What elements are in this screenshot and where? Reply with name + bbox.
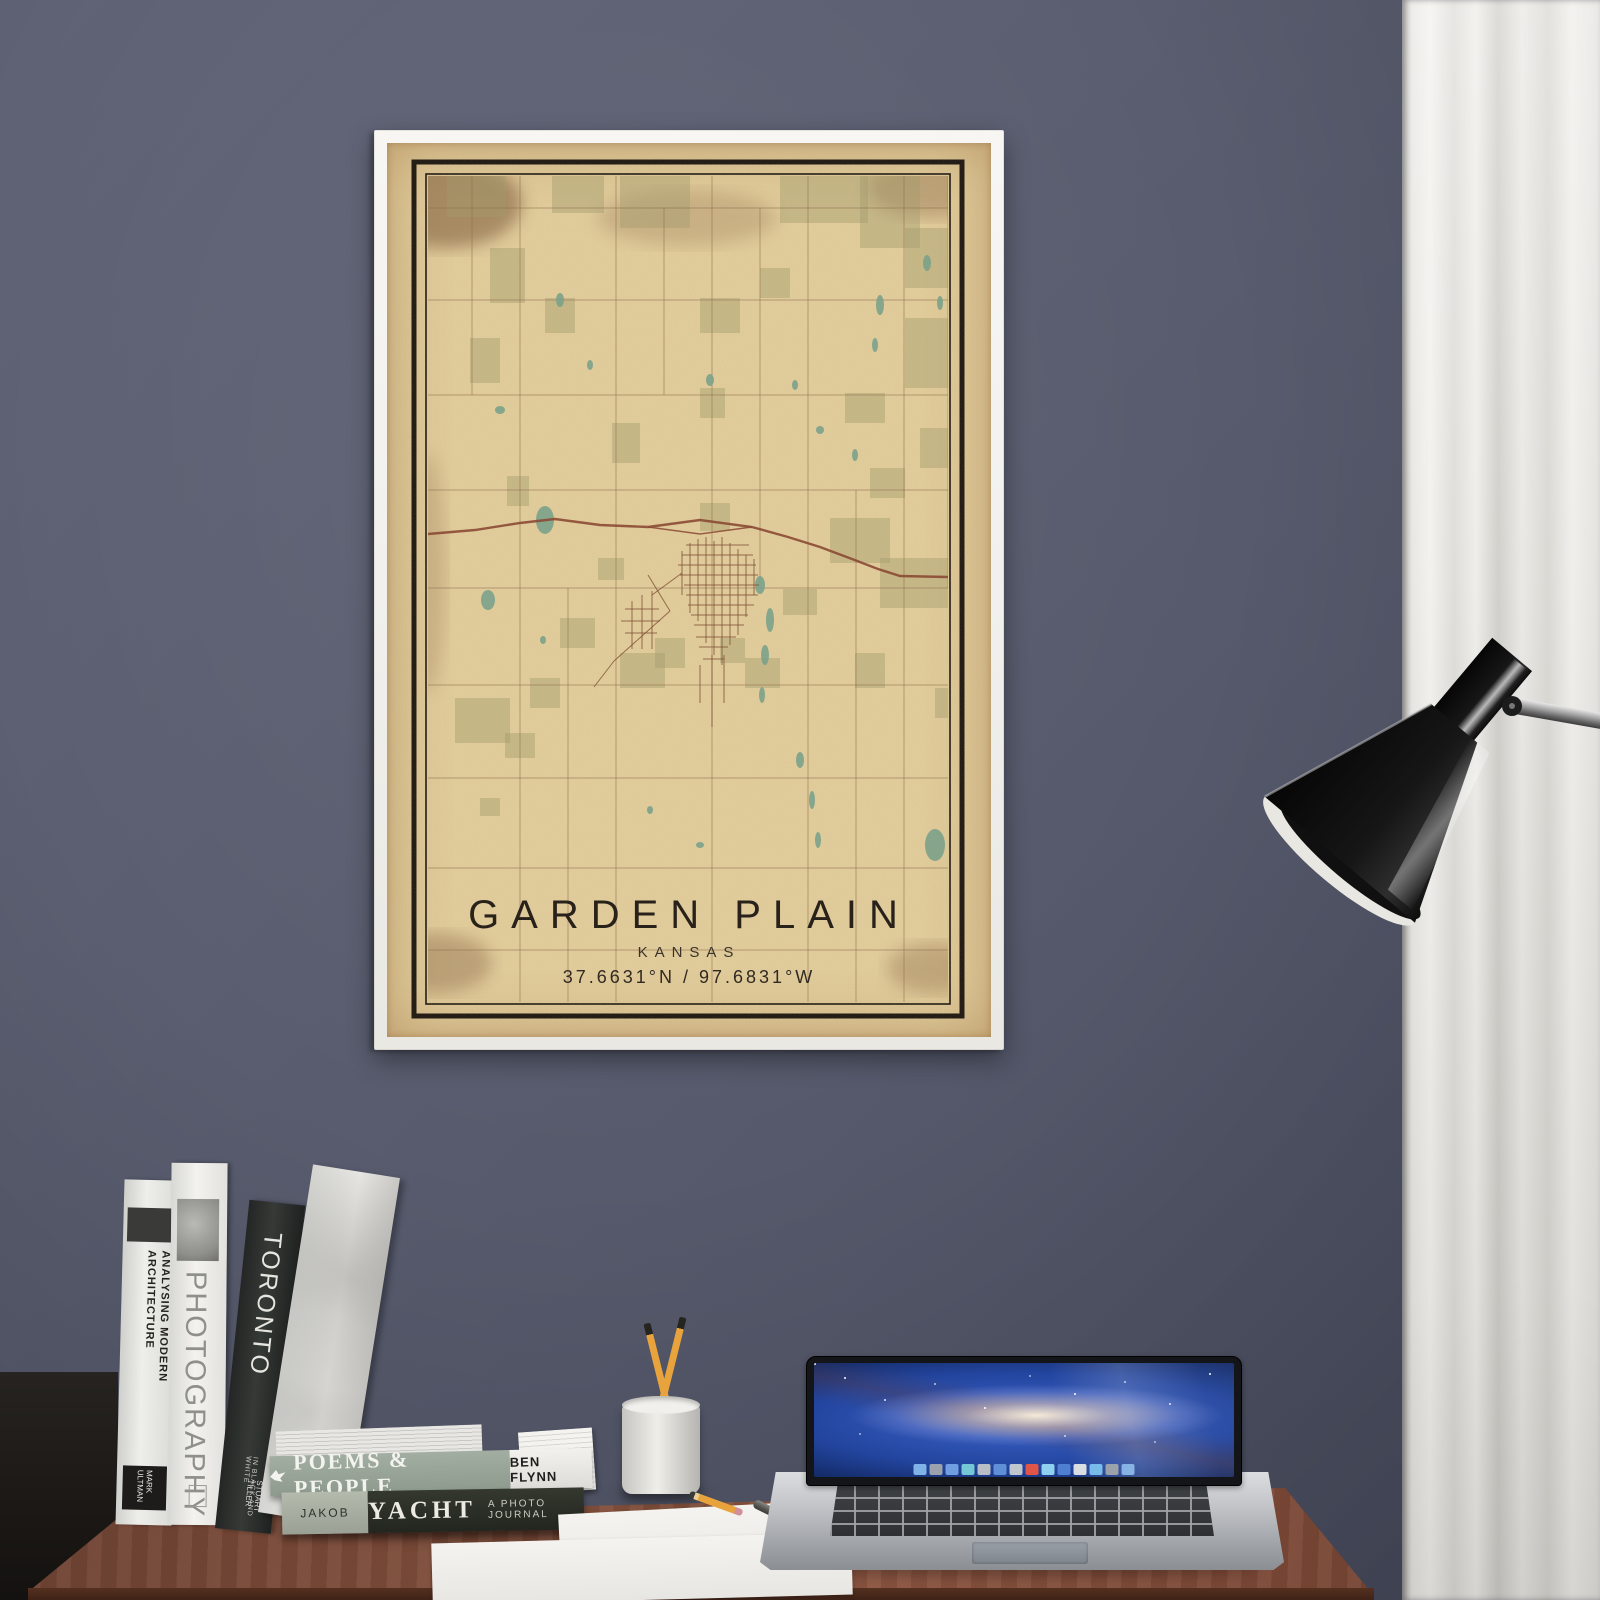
poster-subtitle: KANSAS [387, 944, 991, 961]
laptop-base [760, 1472, 1284, 1570]
room-scene: GARDEN PLAIN KANSAS 37.6631°N / 97.6831°… [0, 0, 1600, 1600]
map-paper: GARDEN PLAIN KANSAS 37.6631°N / 97.6831°… [387, 143, 991, 1037]
book-author: BEN FLYNN [509, 1448, 592, 1490]
book-title: YACHT [368, 1496, 476, 1526]
book-author: MARK ULTMAN [135, 1470, 154, 1508]
poster-coordinates: 37.6631°N / 97.6831°W [387, 967, 991, 988]
book-title: ANALYSING MODERN ARCHITECTURE [123, 1249, 172, 1460]
lamp-hinge-screw [1509, 703, 1515, 709]
screen-glare [814, 1363, 1234, 1477]
book-cover-band [127, 1207, 176, 1242]
book-author-band: MARK ULTMAN [122, 1465, 167, 1510]
pencil-cup [622, 1404, 700, 1494]
laptop-trackpad [972, 1542, 1088, 1564]
framed-map-poster: GARDEN PLAIN KANSAS 37.6631°N / 97.6831°… [374, 130, 1004, 1050]
publisher-logo [189, 1485, 207, 1507]
laptop-screen [806, 1356, 1242, 1486]
desk-lamp [1240, 560, 1600, 1000]
book-yacht: JAKOB YACHT A PHOTO JOURNAL [282, 1487, 585, 1534]
book-spine-right: YACHT A PHOTO JOURNAL [368, 1487, 585, 1533]
book-spine-photo [177, 1199, 220, 1261]
laptop-keyboard [830, 1484, 1214, 1536]
galaxy-wallpaper [814, 1363, 1234, 1477]
poster-title: GARDEN PLAIN [387, 893, 991, 938]
book-spine-left: JAKOB [282, 1491, 369, 1534]
lamp-arm [1515, 698, 1600, 729]
bird-icon [270, 1470, 286, 1482]
lamp-head [1249, 591, 1587, 941]
book-photography: PHOTOGRAPHY [168, 1163, 227, 1525]
book-title: PHOTOGRAPHY [177, 1271, 212, 1507]
